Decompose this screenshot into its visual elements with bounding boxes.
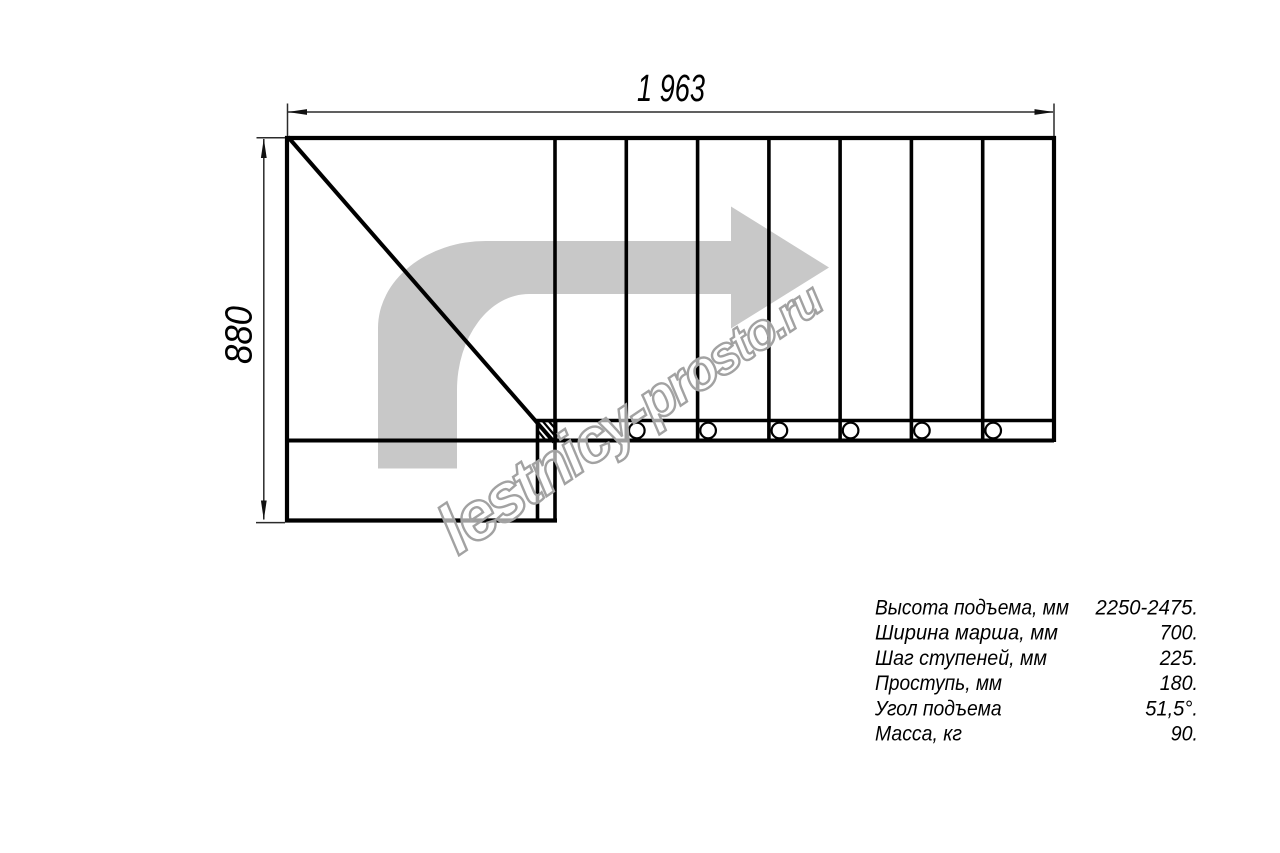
svg-text:90.: 90. xyxy=(1171,722,1198,746)
svg-text:Масса, кг: Масса, кг xyxy=(875,722,962,746)
svg-text:Шаг ступеней, мм: Шаг ступеней, мм xyxy=(875,646,1047,670)
svg-text:Проступь, мм: Проступь, мм xyxy=(875,671,1002,695)
svg-text:700.: 700. xyxy=(1160,621,1198,645)
svg-text:51,5°.: 51,5°. xyxy=(1145,696,1198,720)
svg-text:Ширина марша, мм: Ширина марша, мм xyxy=(875,621,1058,645)
svg-text:Высота подъема, мм: Высота подъема, мм xyxy=(875,596,1069,620)
svg-text:880: 880 xyxy=(219,306,261,364)
svg-text:225.: 225. xyxy=(1159,646,1198,670)
svg-text:2250-2475.: 2250-2475. xyxy=(1095,596,1198,620)
svg-text:Угол подъема: Угол подъема xyxy=(874,696,1002,720)
svg-text:180.: 180. xyxy=(1160,671,1198,695)
svg-text:1 963: 1 963 xyxy=(637,68,705,110)
